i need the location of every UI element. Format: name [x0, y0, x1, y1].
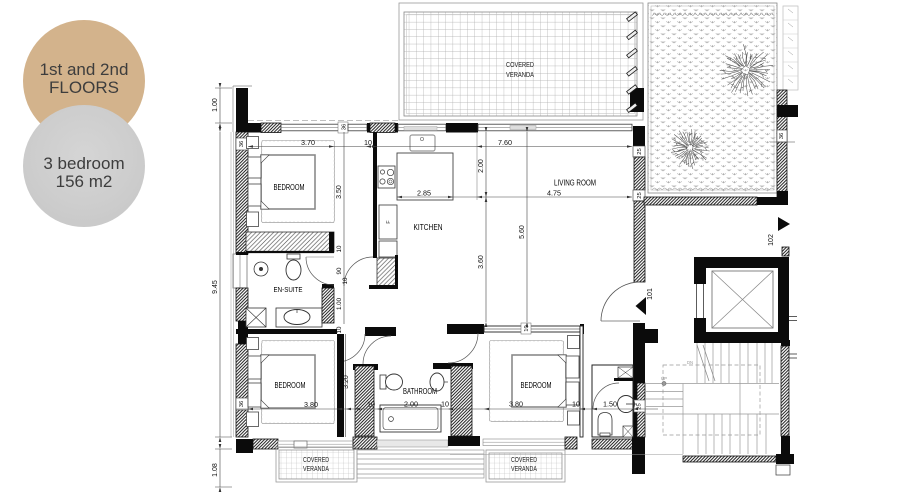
svg-text:10: 10: [364, 138, 372, 147]
svg-text:10: 10: [336, 245, 343, 252]
svg-text:10: 10: [367, 400, 375, 409]
svg-text:3.20: 3.20: [343, 375, 350, 389]
svg-text:BEDROOM: BEDROOM: [274, 183, 305, 192]
svg-text:36: 36: [779, 133, 785, 139]
svg-text:4.75: 4.75: [547, 189, 561, 198]
svg-text:36: 36: [342, 124, 348, 130]
svg-text:101: 101: [647, 288, 654, 300]
svg-text:VERANDA: VERANDA: [511, 466, 537, 473]
svg-text:EN-SUITE: EN-SUITE: [274, 285, 303, 294]
svg-text:1.00: 1.00: [336, 297, 343, 310]
svg-text:3.80: 3.80: [509, 400, 523, 409]
svg-text:3.80: 3.80: [304, 400, 318, 409]
svg-text:102: 102: [768, 234, 775, 246]
svg-text:UP: UP: [661, 376, 667, 381]
svg-text:36: 36: [239, 141, 245, 147]
svg-text:1.08: 1.08: [212, 463, 219, 477]
svg-text:LIVING ROOM: LIVING ROOM: [554, 179, 596, 188]
svg-text:COVERED: COVERED: [303, 457, 329, 464]
svg-text:VERANDA: VERANDA: [303, 466, 329, 473]
svg-text:10: 10: [336, 326, 343, 333]
svg-text:3.70: 3.70: [301, 138, 315, 147]
svg-text:BEDROOM: BEDROOM: [275, 381, 306, 390]
svg-text:25: 25: [637, 192, 643, 198]
svg-text:1.00: 1.00: [212, 98, 219, 112]
svg-text:2.85: 2.85: [417, 189, 431, 198]
svg-text:BATHROOM: BATHROOM: [403, 387, 437, 396]
svg-text:COVERED: COVERED: [511, 457, 537, 464]
svg-text:2.00: 2.00: [404, 400, 418, 409]
svg-text:2.00: 2.00: [478, 159, 485, 173]
svg-text:KITCHEN: KITCHEN: [414, 223, 443, 232]
svg-text:3.60: 3.60: [478, 255, 485, 269]
svg-text:COVERED: COVERED: [506, 60, 534, 69]
svg-text:25: 25: [637, 148, 643, 154]
svg-text:90: 90: [336, 267, 343, 274]
svg-text:10: 10: [572, 400, 580, 409]
svg-text:10: 10: [441, 400, 449, 409]
svg-text:5.60: 5.60: [519, 225, 526, 239]
svg-text:DN: DN: [687, 360, 693, 365]
svg-text:VERANDA: VERANDA: [506, 70, 534, 79]
svg-text:1.50: 1.50: [603, 400, 617, 409]
svg-text:3.50: 3.50: [336, 185, 343, 199]
svg-text:25: 25: [637, 403, 643, 409]
svg-text:10: 10: [342, 277, 349, 284]
svg-text:9.45: 9.45: [212, 280, 219, 294]
svg-text:BEDROOM: BEDROOM: [521, 381, 552, 390]
svg-text:7.60: 7.60: [498, 138, 512, 147]
svg-text:36: 36: [239, 401, 245, 407]
